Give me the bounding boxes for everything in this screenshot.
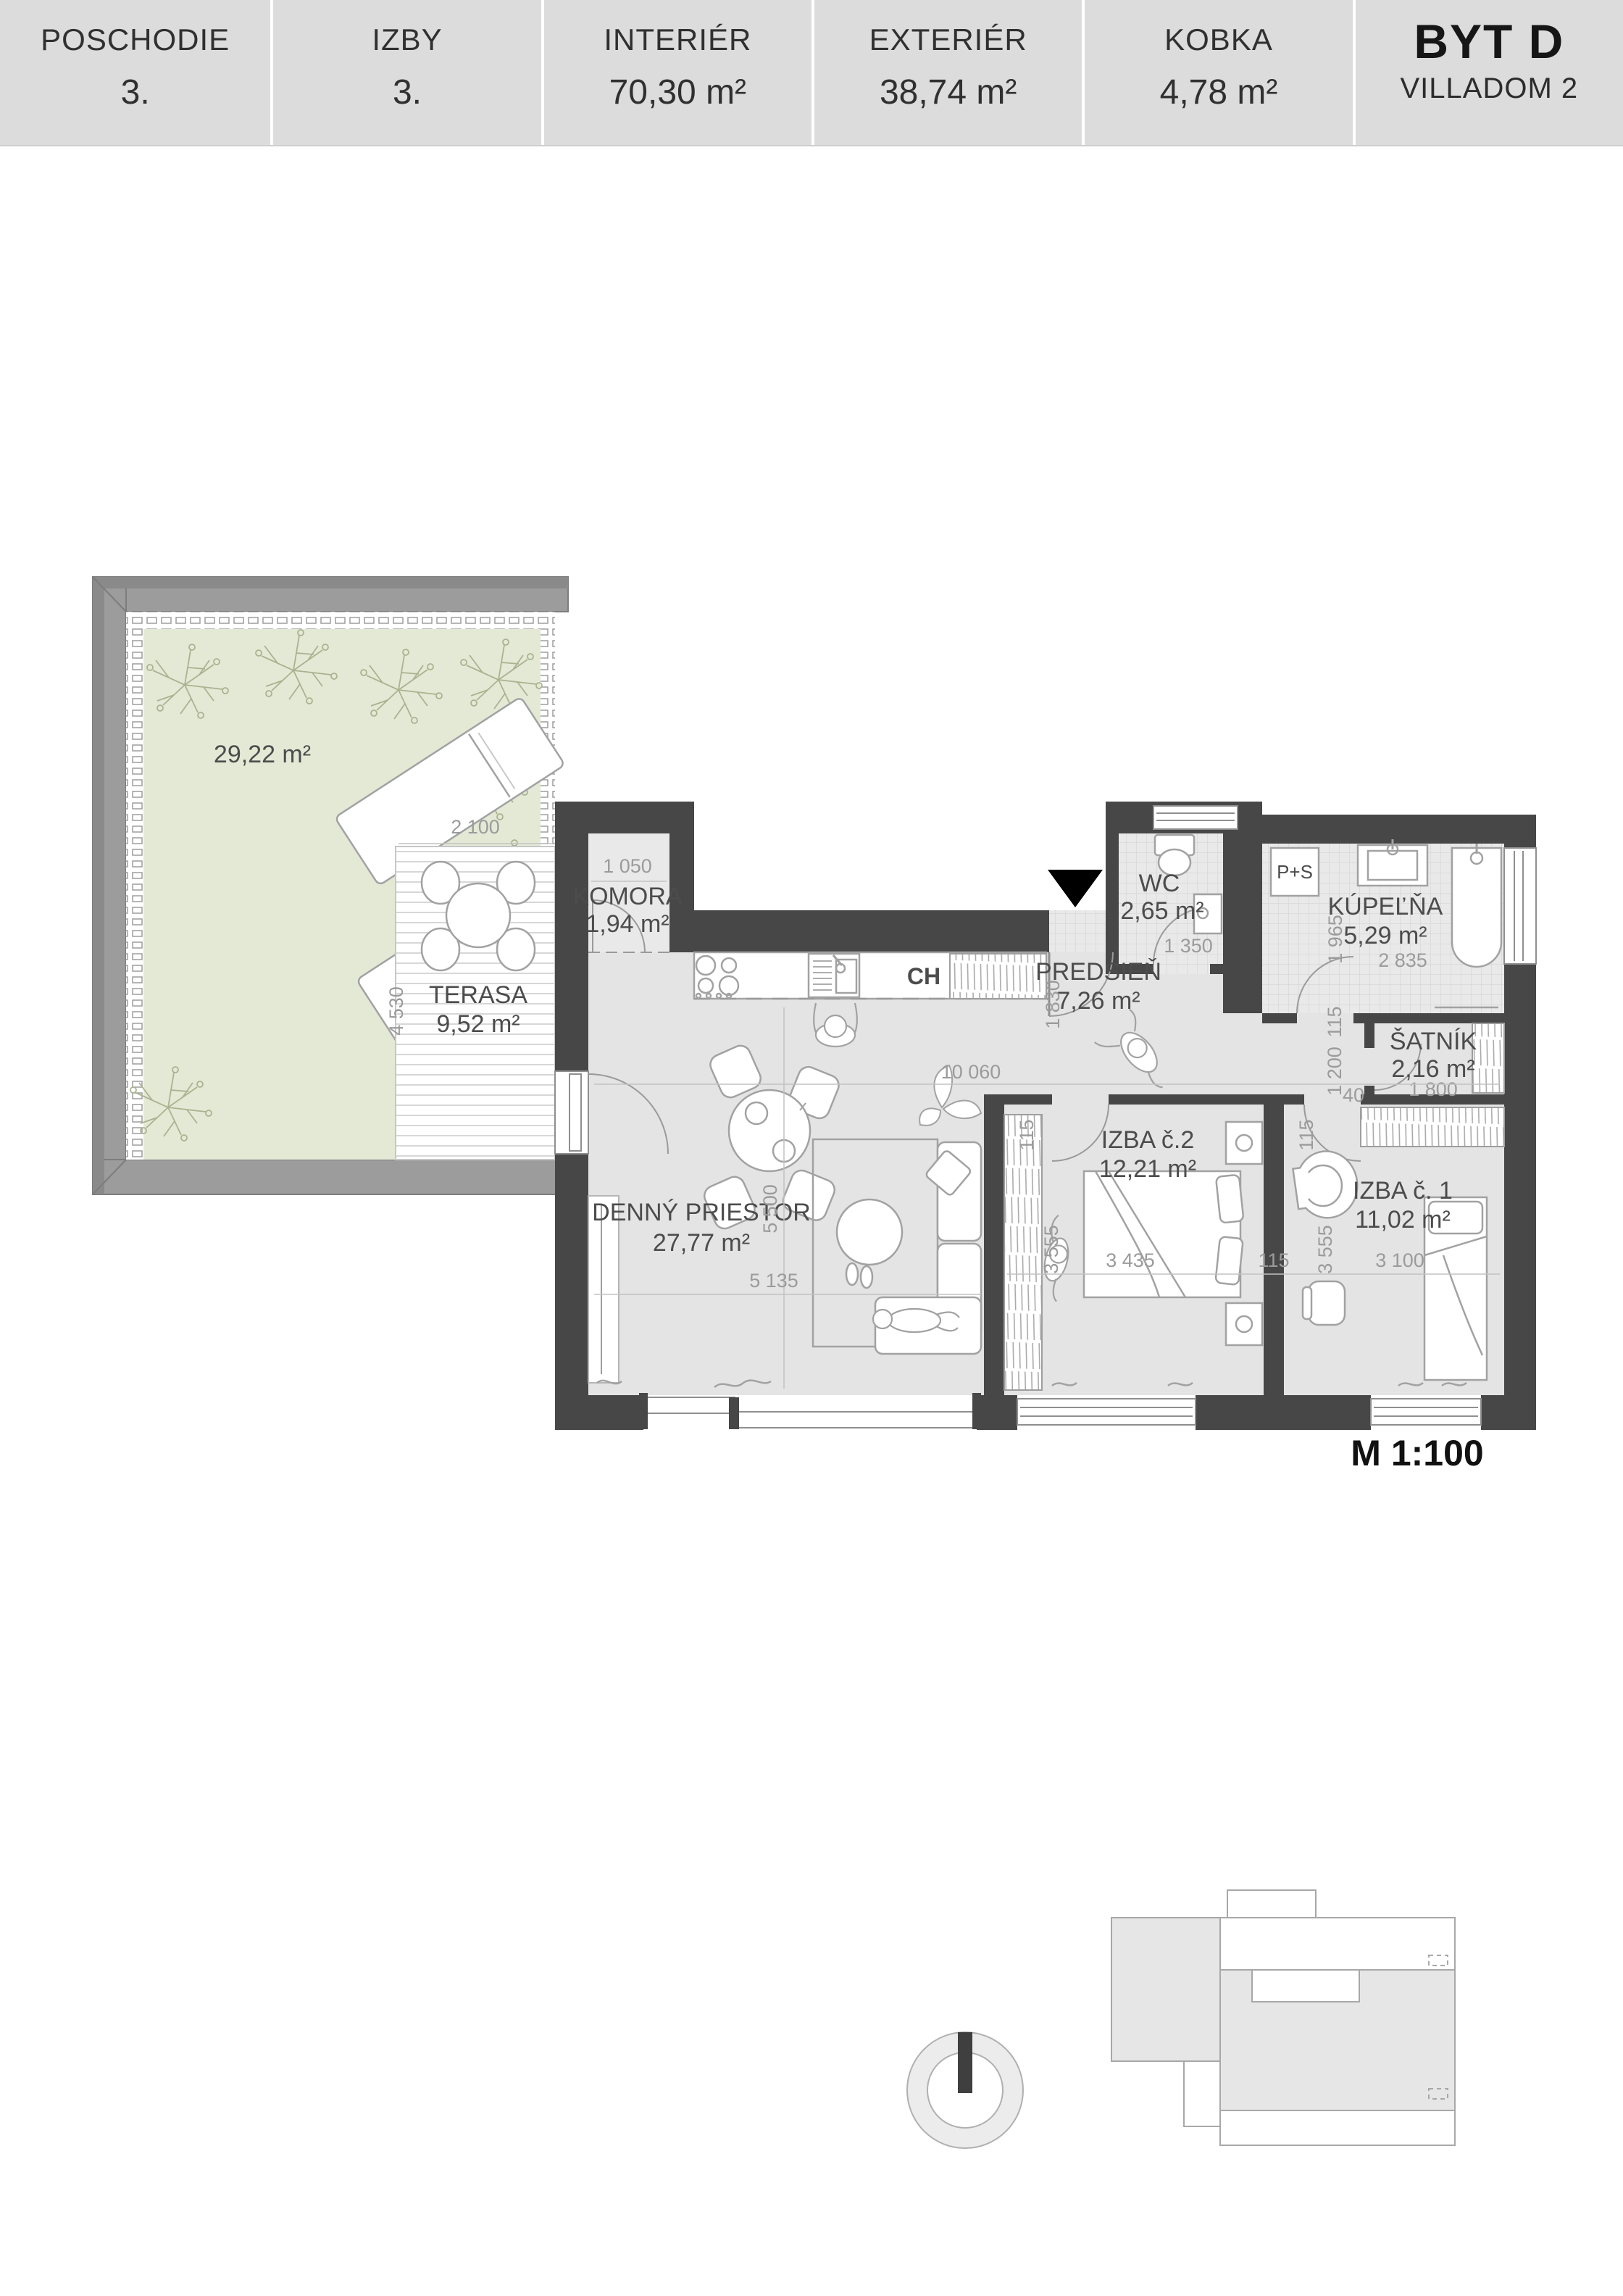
dim-kupelna-height: 1 965: [1324, 915, 1346, 964]
col-label: POSCHODIE: [41, 17, 230, 62]
col-value: 70,30 m²: [609, 72, 746, 112]
dim-izba1-height: 3 555: [1314, 1225, 1336, 1274]
izba2-area: 12,21 m²: [1099, 1155, 1196, 1183]
izba1-area: 11,02 m²: [1355, 1206, 1451, 1234]
denny-area: 27,77 m²: [653, 1229, 750, 1257]
header-cell-poschodie: POSCHODIE 3.: [0, 0, 270, 145]
col-label: EXTERIÉR: [869, 17, 1027, 62]
bathroom-sink: [1358, 839, 1427, 886]
summary-header: POSCHODIE 3. IZBY 3. INTERIÉR 70,30 m² E…: [0, 0, 1623, 146]
dim-wall-115: 115: [1296, 1119, 1317, 1150]
floorplan-svg: 29,22 m² TERASA 9,52 m² 2 100 4 530: [0, 0, 1623, 2296]
izba2-label: IZBA č.2: [1101, 1126, 1195, 1154]
terrace-table: [446, 883, 510, 947]
fridge-label: CH: [907, 963, 940, 989]
header-cell-izby: IZBY 3.: [270, 0, 541, 145]
washer-dryer-label: P+S: [1277, 861, 1313, 883]
scale-label: M 1:100: [1351, 1433, 1483, 1473]
header-cell-interier: INTERIÉR 70,30 m²: [541, 0, 811, 145]
col-value: 38,74 m²: [880, 72, 1017, 112]
unit-name: BYT D: [1414, 17, 1564, 65]
komora-area: 1,94 m²: [585, 910, 669, 938]
satnik-label: ŠATNÍK: [1390, 1028, 1477, 1055]
dim-living-width: 5 135: [749, 1270, 798, 1291]
entrance-arrow-icon: [1048, 870, 1103, 907]
izba1-wardrobe: [1361, 1107, 1504, 1147]
dim-komora-width: 1 050: [603, 855, 652, 877]
dim-wall-115: 115: [1258, 1249, 1289, 1271]
izba1-window: [1371, 1399, 1481, 1425]
dim-izba2-width: 3 435: [1106, 1249, 1155, 1271]
dim-kupelna-width: 2 835: [1378, 949, 1427, 971]
dim-living-height: 5 500: [759, 1184, 781, 1234]
predsien-area: 7,26 m²: [1056, 987, 1140, 1015]
col-value: 3.: [393, 72, 422, 112]
dim-terasa-width: 2 100: [451, 816, 500, 838]
col-value: 3.: [121, 72, 150, 112]
col-value: 4,78 m²: [1160, 72, 1278, 112]
kitchen-tall-cabinets: [950, 954, 1046, 999]
dim-predsien-height: 1 830: [1042, 980, 1064, 1029]
bathroom-window: [1504, 848, 1536, 964]
dim-izba1-width: 3 100: [1375, 1249, 1424, 1271]
living-sliding-window: [639, 1393, 981, 1429]
planter-border: [126, 612, 541, 629]
col-label: KOBKA: [1164, 17, 1273, 62]
kitchen-sink: [809, 954, 859, 997]
dim-wall-115: 115: [1016, 1119, 1038, 1150]
col-label: INTERIÉR: [604, 17, 751, 62]
terasa-label: TERASA: [429, 981, 527, 1009]
dim-main-width: 10 060: [941, 1061, 1001, 1083]
wc-area: 2,65 m²: [1120, 897, 1203, 925]
header-cell-kobka: KOBKA 4,78 m²: [1082, 0, 1352, 145]
satnik-wardrobe: [1472, 1023, 1504, 1093]
coffee-table: [837, 1199, 902, 1265]
garden-area-label: 29,22 m²: [214, 741, 311, 768]
kupelna-area: 5,29 m²: [1343, 922, 1427, 949]
unit-building: VILLADOM 2: [1401, 72, 1579, 105]
dim-wc-width: 1 350: [1164, 935, 1213, 957]
desk-chair: [1303, 1281, 1345, 1325]
dim-hall-40: 40: [1343, 1084, 1364, 1106]
komora-label: KOMORA: [572, 883, 682, 910]
exterior-garden: 29,22 m² TERASA 9,52 m² 2 100 4 530: [93, 577, 587, 1194]
wc-label: WC: [1139, 870, 1180, 897]
dim-wall-115: 115: [1324, 1006, 1345, 1037]
terasa-area: 9,52 m²: [436, 1010, 520, 1038]
izba2-window: [1017, 1399, 1196, 1425]
bathtub: [1452, 844, 1501, 967]
floorplan-sheet: { "header": { "columns": [ {"label": "PO…: [0, 0, 1623, 2296]
izba2-wardrobe: [1004, 1115, 1042, 1390]
header-cell-exterier: EXTERIÉR 38,74 m²: [811, 0, 1082, 145]
dim-izba2-height: 3 555: [1040, 1225, 1062, 1274]
dim-satnik-width: 1 800: [1409, 1078, 1458, 1100]
site-location-diagram: [1111, 1890, 1455, 2145]
izba1-label: IZBA č. 1: [1353, 1177, 1453, 1205]
wc-window: [1153, 806, 1238, 829]
header-cell-unit: BYT D VILLADOM 2: [1353, 0, 1623, 145]
north-indicator-icon: [907, 2032, 1023, 2148]
terrace: TERASA 9,52 m²: [396, 847, 555, 1160]
col-label: IZBY: [372, 17, 442, 62]
dim-terasa-height: 4 530: [385, 986, 407, 1036]
